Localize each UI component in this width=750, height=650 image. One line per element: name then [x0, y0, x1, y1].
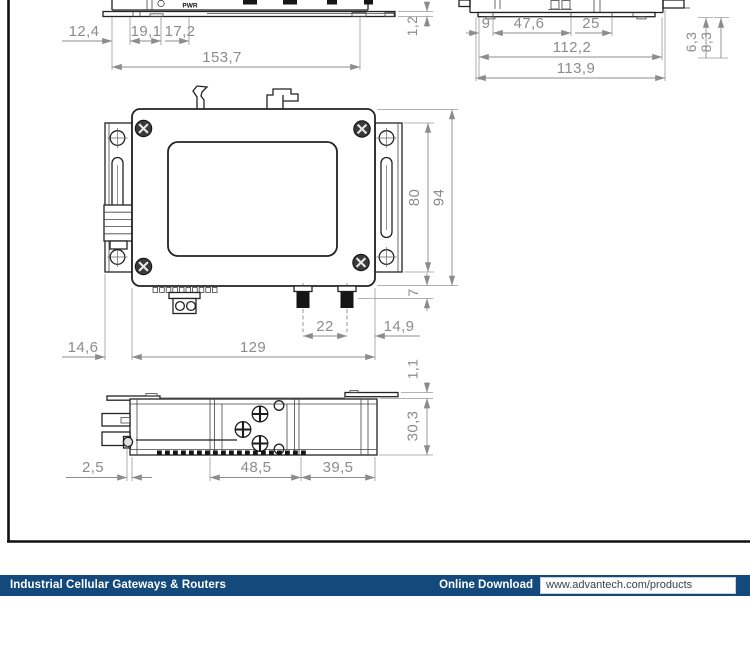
label-area: [168, 142, 337, 256]
panel-label-fragment: [364, 0, 373, 5]
dim-25: 25: [582, 15, 600, 32]
dim-112-2: 112,2: [553, 39, 591, 56]
din-clip-left: [193, 86, 207, 109]
dim-12-4: 12,4: [69, 23, 100, 40]
dim-113-9: 113,9: [557, 60, 595, 77]
dim-80: 80: [406, 189, 423, 207]
dim-8-3: 8,3: [698, 32, 714, 53]
front-view: 22 14,9 14,6 129 80 94 7: [62, 86, 458, 360]
panel-label-fragment: [243, 0, 257, 5]
bracket-right: [375, 123, 402, 272]
dim-14-9: 14,9: [384, 318, 415, 335]
top-front-view: PWR 12,4 19,1 17,2 153,7: [62, 0, 395, 70]
footer-category-label: Industrial Cellular Gateways & Routers: [10, 575, 226, 596]
dim-22: 22: [316, 318, 334, 335]
dim-14-6: 14,6: [68, 339, 99, 356]
panel-label-fragment: [327, 0, 337, 5]
dim-129: 129: [240, 339, 266, 356]
dim-39-5: 39,5: [323, 459, 354, 476]
dim-1-1: 1,1: [405, 359, 421, 380]
dim-47-6: 47,6: [514, 15, 545, 32]
dim-6-3: 6,3: [683, 32, 699, 53]
footer-bar: Industrial Cellular Gateways & Routers O…: [0, 575, 750, 596]
dim-2-5: 2,5: [82, 459, 104, 476]
footer-download-label: Online Download: [439, 575, 533, 596]
dim-19-1: 19,1: [131, 23, 162, 40]
dim-9: 9: [482, 15, 491, 32]
dimension-drawing: PWR 12,4 19,1 17,2 153,7: [0, 0, 750, 650]
dim-153-7: 153,7: [202, 49, 242, 66]
top-side-view: 1,2 9 47,6 25 112,2 113,9 6,3 8,3: [398, 0, 729, 81]
dim-48-5: 48,5: [241, 459, 272, 476]
power-terminal: [169, 293, 200, 314]
panel-label-fragment: [283, 0, 297, 5]
dim-17-2: 17,2: [165, 23, 196, 40]
vent-serration: [153, 288, 217, 293]
din-clip-right: [267, 89, 298, 109]
dim-1-2: 1,2: [404, 16, 420, 37]
dim-94: 94: [431, 189, 448, 207]
dim-30-3: 30,3: [405, 411, 422, 442]
panel-label-pwr: PWR: [182, 3, 197, 10]
bottom-view: 2,5 48,5 39,5 1,1 30,3: [66, 359, 433, 481]
footer-url-link[interactable]: www.advantech.com/products: [540, 577, 736, 594]
dim-7: 7: [405, 288, 421, 296]
datasheet-page: PWR 12,4 19,1 17,2 153,7: [0, 0, 750, 650]
